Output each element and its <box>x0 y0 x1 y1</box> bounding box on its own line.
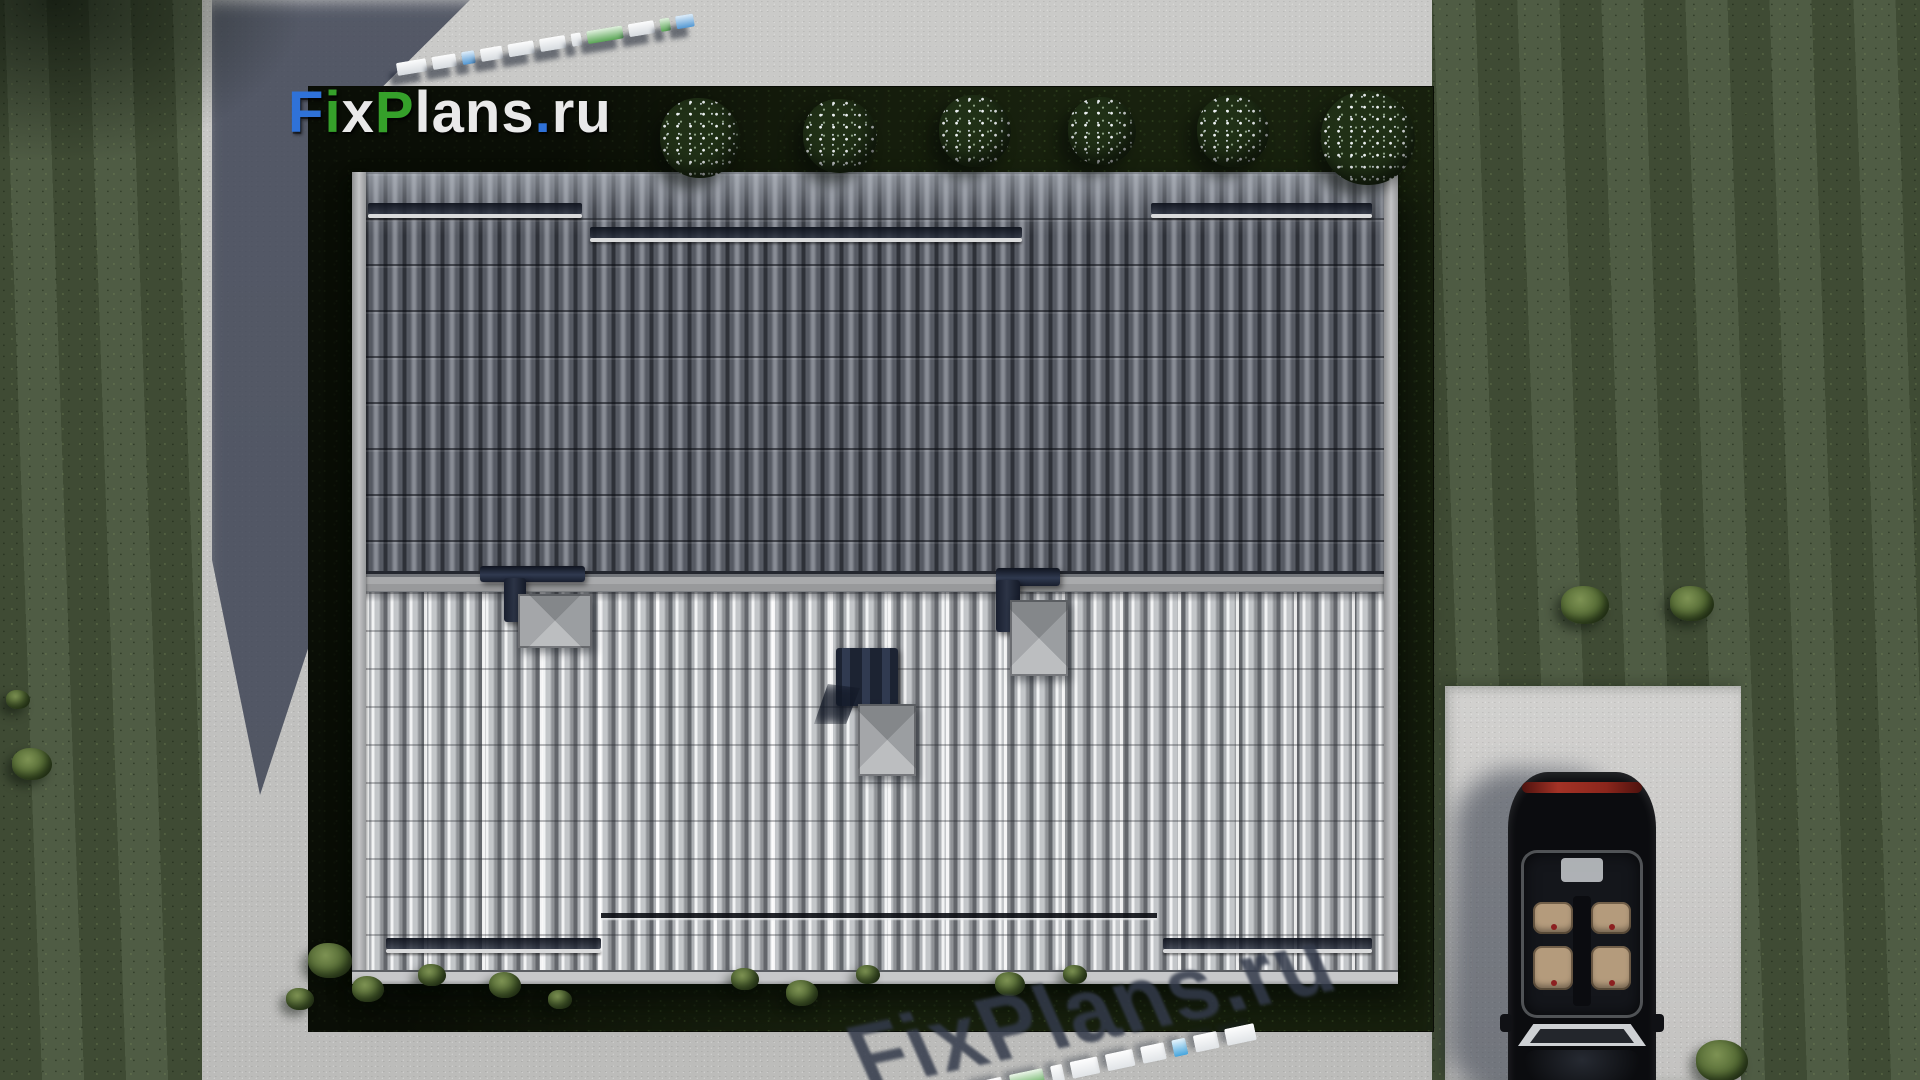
bush <box>352 976 384 1002</box>
aerial-render-scene: FixPlans.ru <box>0 0 1920 1080</box>
bush <box>856 965 880 984</box>
snow-guard-rail <box>590 238 1022 242</box>
chimney-1-ridge-pipe <box>480 566 585 582</box>
snow-guard-shadow <box>386 938 601 949</box>
chimney-2-pyramid-cap <box>1010 600 1068 676</box>
flowering-tree <box>939 95 1011 167</box>
snow-guard-shadow <box>1151 203 1372 214</box>
bush <box>1670 586 1714 621</box>
car-open-cabin <box>1521 850 1643 1018</box>
bush <box>786 980 818 1006</box>
car-mirror-right <box>1652 1014 1664 1032</box>
car-body <box>1508 772 1656 1080</box>
snow-guard-rail <box>368 214 582 218</box>
snow-guard-shadow <box>368 203 582 214</box>
fixplans-logo: FixPlans.ru <box>288 84 612 140</box>
flowering-tree <box>803 99 877 173</box>
logo-letter: n <box>465 84 501 142</box>
flowering-tree <box>1321 91 1415 185</box>
car-front-seat-right <box>1591 946 1631 990</box>
snow-guard-rail <box>1151 214 1372 218</box>
car-rear-seat-right <box>1591 902 1631 934</box>
parked-car <box>1440 700 1720 1080</box>
bush <box>286 988 314 1010</box>
letter-block <box>659 17 671 31</box>
seatbelt-dot <box>1609 980 1615 986</box>
seatbelt-dot <box>1551 980 1557 986</box>
flowering-tree <box>1068 97 1136 165</box>
car-rear-seat-left <box>1533 902 1573 934</box>
logo-letter: r <box>552 84 576 142</box>
bush <box>418 964 446 986</box>
snow-guard-wire <box>601 913 1157 918</box>
roof-bargeboard-right <box>1384 172 1398 984</box>
roof-vent-pyramid-cap <box>858 704 916 776</box>
car-mirror-left <box>1500 1014 1512 1032</box>
letter-block <box>461 50 476 65</box>
logo-letter: a <box>432 84 465 142</box>
letter-top-block <box>1140 1042 1167 1064</box>
bush <box>489 972 521 998</box>
logo-letter: P <box>375 84 415 142</box>
bush <box>12 748 52 780</box>
flowering-tree <box>660 98 740 178</box>
house-roof <box>352 172 1398 984</box>
bush <box>548 990 572 1009</box>
letter-block <box>570 32 582 46</box>
snow-guard-shadow <box>590 227 1022 238</box>
logo-letter: l <box>415 84 432 142</box>
letter-top-block <box>1171 1038 1188 1058</box>
car-taillight-strip <box>1522 782 1642 793</box>
logo-letter: u <box>575 84 611 142</box>
car-windshield <box>1518 1024 1646 1046</box>
logo-letter: s <box>501 84 534 142</box>
logo-letter: . <box>535 84 552 142</box>
snow-guard-rail <box>386 949 601 953</box>
bush <box>1561 586 1609 624</box>
car-rear-deck <box>1561 858 1603 882</box>
car-hood <box>1524 1050 1640 1080</box>
bush <box>731 968 759 990</box>
seatbelt-dot <box>1551 924 1557 930</box>
bush <box>308 943 352 978</box>
flowering-tree <box>1197 95 1269 167</box>
logo-letter: i <box>324 84 341 142</box>
chimney-1-pyramid-cap <box>518 594 592 648</box>
car-front-seat-left <box>1533 946 1573 990</box>
logo-letter: x <box>342 84 375 142</box>
letter-top-block <box>1193 1031 1220 1053</box>
roof-bargeboard-left <box>352 172 366 984</box>
logo-letter: F <box>288 84 324 142</box>
letter-top-block <box>1050 1064 1065 1080</box>
bush <box>6 690 30 709</box>
seatbelt-dot <box>1609 924 1615 930</box>
car-center-console <box>1573 896 1591 1006</box>
